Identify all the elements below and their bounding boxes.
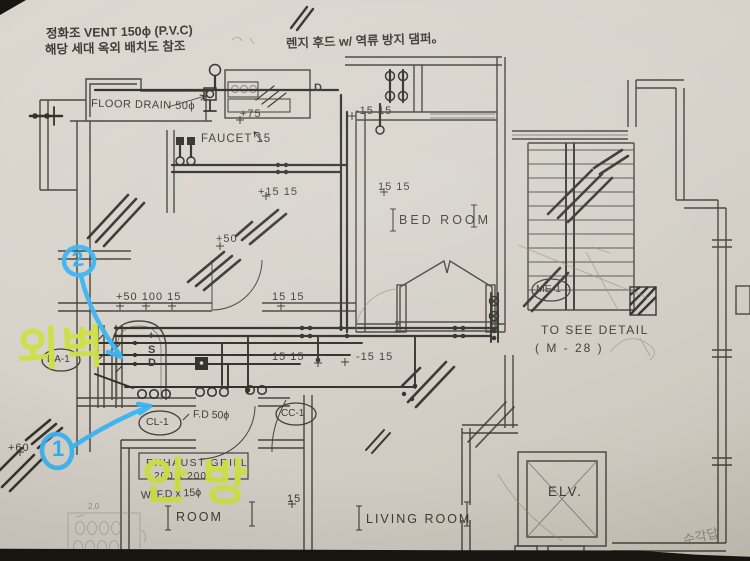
pipe-label-s: S bbox=[148, 344, 155, 356]
blueprint-linework bbox=[0, 0, 750, 561]
highlight-exterior-wall: 외벽 bbox=[16, 321, 106, 375]
dim-15-15-a: -15 15 bbox=[355, 105, 392, 117]
pipe-label-plus: + bbox=[148, 330, 154, 342]
dim-15-15-f: -15 15 bbox=[356, 351, 393, 363]
pipe-label-kitchen-d: D bbox=[314, 82, 322, 94]
duct-chase bbox=[630, 287, 656, 315]
note-detail-line2: ( M - 28 ) bbox=[535, 342, 604, 355]
room-label-room: ROOM bbox=[176, 511, 223, 525]
label-faucet: FAUCET 15 bbox=[201, 133, 271, 146]
circled-number-1: 1 bbox=[52, 437, 64, 461]
label-fd50: F.D 50ϕ bbox=[193, 409, 230, 422]
note-detail-line1: TO SEE DETAIL bbox=[541, 324, 649, 337]
dim-15-15-e: 15 15 bbox=[272, 351, 305, 363]
dim-60: +60 bbox=[8, 442, 30, 454]
dim-15-15-c: 15 15 bbox=[378, 181, 411, 193]
dim-15: 15 bbox=[287, 493, 301, 505]
bathtub-outline bbox=[112, 321, 166, 400]
dim-75: +75 bbox=[240, 108, 262, 120]
blueprint-photo: 정화조 VENT 150ϕ (P.V.C) 해당 세대 옥외 배치도 참조 렌지… bbox=[0, 0, 750, 561]
pencil-sketch-dim: 2.0 bbox=[88, 503, 99, 512]
tag-me1: ME-1 bbox=[536, 284, 561, 296]
tag-cl1: CL-1 bbox=[146, 417, 169, 429]
room-label-bedroom: BED ROOM bbox=[399, 214, 491, 228]
kitchen-counter bbox=[225, 70, 310, 118]
room-label-living-room: LIVING ROOM bbox=[366, 513, 471, 527]
highlight-master-room: 안방 bbox=[142, 454, 263, 511]
pipe-label-d: D bbox=[148, 357, 156, 369]
circled-number-2: 2 bbox=[71, 247, 85, 271]
dim-50-100-15: +50 100 15 bbox=[116, 291, 181, 303]
room-label-elevator: ELV. bbox=[548, 485, 583, 500]
dim-50: +50 bbox=[216, 233, 238, 245]
dim-15-15-d: 15 15 bbox=[272, 291, 305, 303]
tag-cc1: CC-1 bbox=[281, 408, 304, 419]
dim-15-15-b: +15 15 bbox=[258, 186, 298, 198]
